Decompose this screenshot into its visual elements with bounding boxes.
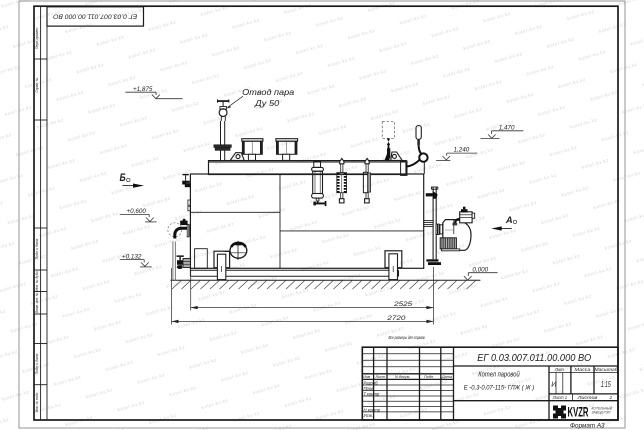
svg-text:Ду 50: Ду 50 — [254, 99, 280, 108]
svg-text:Н.контр: Н.контр — [364, 407, 381, 412]
svg-text:Взам. инв. №: Взам. инв. № — [35, 292, 39, 313]
svg-text:Дата: Дата — [441, 375, 452, 379]
svg-text:Подп. и дата: Подп. и дата — [35, 239, 39, 260]
svg-text:2720: 2720 — [386, 315, 406, 322]
svg-text:+0,132: +0,132 — [122, 253, 142, 260]
svg-text:ЕГ 0.03.007.011.00.000 ВО: ЕГ 0.03.007.011.00.000 ВО — [477, 352, 591, 364]
svg-text:2525: 2525 — [393, 301, 413, 308]
svg-text:ЕГ 0.03.007.011.00.000 ВО: ЕГ 0.03.007.011.00.000 ВО — [53, 12, 137, 19]
svg-text:N докум.: N докум. — [395, 375, 410, 379]
svg-text:Масштаб: Масштаб — [595, 367, 619, 372]
svg-text:Подп.: Подп. — [424, 375, 434, 379]
svg-text:А: А — [505, 215, 513, 226]
svg-text:Т.контр: Т.контр — [364, 391, 380, 396]
svg-text:Котел паровой: Котел паровой — [478, 370, 520, 378]
svg-text:Отвод пара: Отвод пара — [242, 88, 295, 97]
svg-text:Масса: Масса — [575, 367, 592, 372]
svg-text:0,000: 0,000 — [472, 267, 488, 274]
svg-text:KVZR: KVZR — [568, 403, 589, 419]
svg-text:Е -0,3-0,07-115- ГЛЖ ( Ж ): Е -0,3-0,07-115- ГЛЖ ( Ж ) — [464, 384, 535, 391]
svg-text:ЗАВОД РЭП: ЗАВОД РЭП — [592, 411, 612, 415]
svg-text:Разраб.: Разраб. — [364, 380, 379, 385]
svg-text:Пров.: Пров. — [364, 386, 375, 391]
svg-text:Б: Б — [120, 172, 126, 184]
svg-text:Изм: Изм — [363, 375, 370, 379]
svg-text:1,240: 1,240 — [454, 147, 470, 154]
svg-text:1:15: 1:15 — [601, 380, 611, 389]
svg-text:Лист: Лист — [552, 395, 564, 400]
svg-text:1,470: 1,470 — [499, 124, 515, 131]
svg-text:Подп. и дата: Подп. и дата — [35, 354, 39, 375]
svg-text:Лист: Лист — [375, 375, 386, 379]
svg-text:Утв.: Утв. — [364, 413, 374, 418]
svg-text:Справ. №: Справ. № — [35, 77, 39, 92]
svg-text:И: И — [551, 380, 557, 389]
svg-text:Инв. № подл.: Инв. № подл. — [35, 392, 39, 413]
svg-text:Листов: Листов — [576, 395, 598, 400]
svg-text:Инв. № дубл.: Инв. № дубл. — [35, 270, 39, 290]
svg-text:+0,600: +0,600 — [127, 208, 147, 215]
svg-text:Формат А3: Формат А3 — [570, 423, 605, 430]
svg-text:Все размеры для справок: Все размеры для справок — [389, 335, 426, 341]
svg-text:Лит: Лит — [554, 367, 564, 372]
svg-text:+1,875: +1,875 — [133, 86, 153, 93]
svg-text:Перв. примен.: Перв. примен. — [35, 27, 39, 49]
